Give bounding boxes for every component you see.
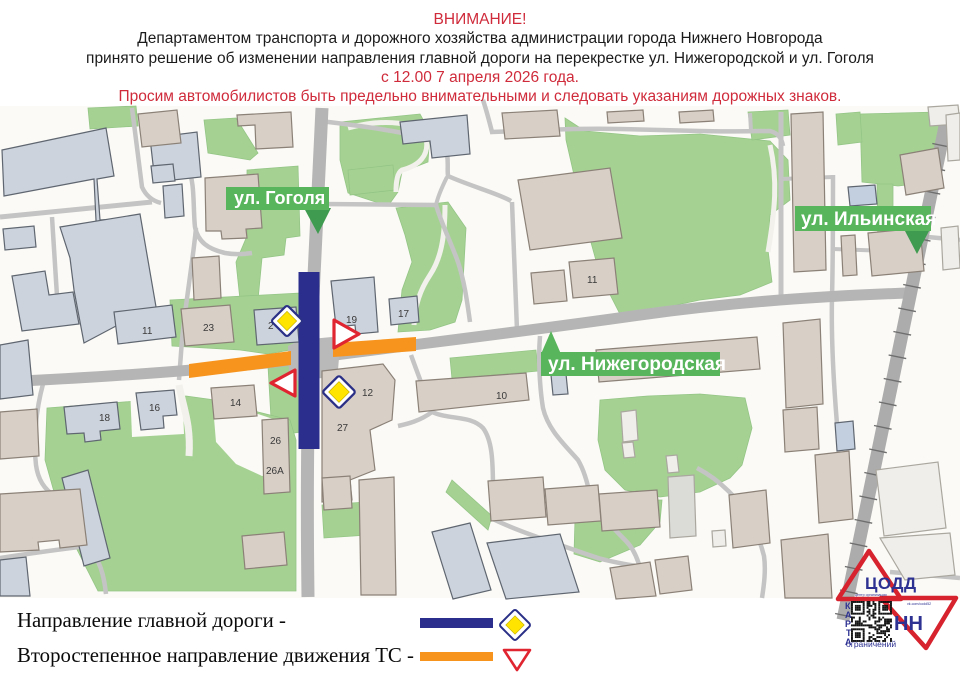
svg-text:ЦОДД: ЦОДД [865,574,917,593]
svg-text:центр организации: центр организации [855,593,887,597]
svg-text:10: 10 [496,391,508,402]
svg-text:26: 26 [270,436,282,447]
svg-text:11: 11 [587,275,598,286]
svg-text:27: 27 [337,423,349,434]
svg-text:11: 11 [142,326,153,337]
svg-text:14: 14 [230,398,242,409]
svg-text:ул. Гоголя: ул. Гоголя [234,188,325,208]
svg-text:26А: 26А [266,466,284,477]
svg-text:23: 23 [203,323,215,334]
svg-text:17: 17 [398,309,410,320]
svg-text:НН: НН [894,613,923,635]
svg-text:18: 18 [99,413,111,424]
svg-text:19: 19 [346,315,358,326]
svg-text:ул. Нижегородская: ул. Нижегородская [548,354,726,375]
svg-text:vk.com/codd52: vk.com/codd52 [907,602,931,606]
svg-text:12: 12 [362,388,374,399]
svg-text:16: 16 [149,403,161,414]
svg-text:ограничений: ограничений [846,639,896,649]
svg-text:ул. Ильинская: ул. Ильинская [801,209,936,230]
